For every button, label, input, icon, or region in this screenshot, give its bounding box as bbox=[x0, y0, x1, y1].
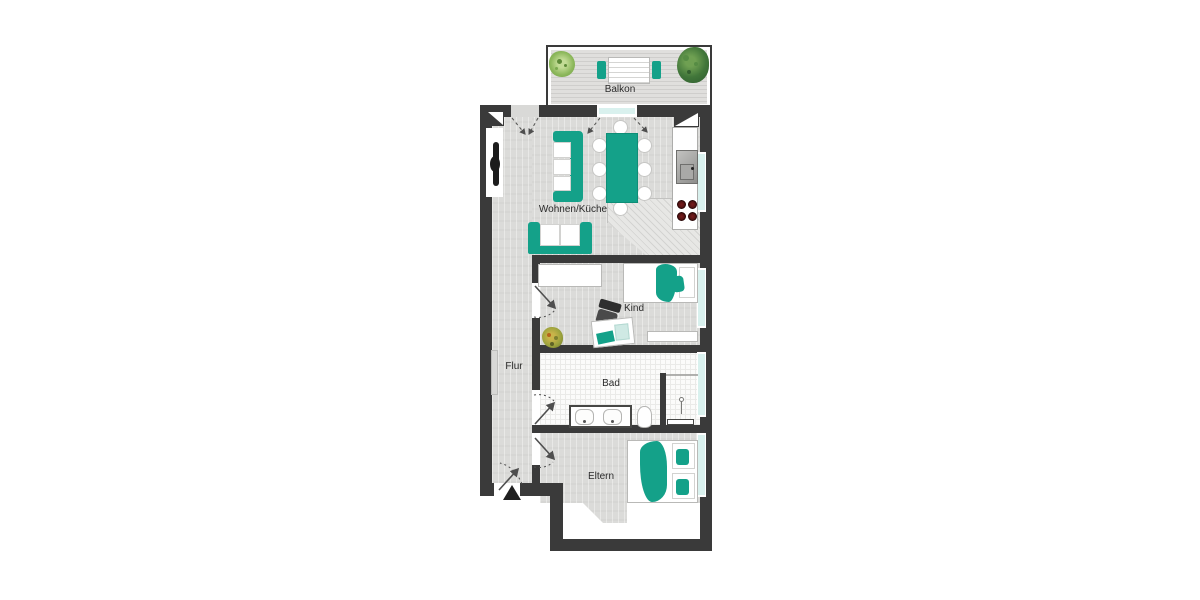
balcony-chair-right bbox=[652, 61, 661, 79]
wall-shower-partition bbox=[660, 373, 666, 425]
duct-shaft-tr-fill bbox=[675, 113, 698, 126]
kind-plant-icon bbox=[542, 327, 563, 348]
room-label-wohnen-kueche: Wohnen/Küche bbox=[528, 204, 618, 215]
wall-bottom bbox=[550, 539, 712, 551]
stove-burner bbox=[677, 212, 686, 221]
dining-chair bbox=[637, 186, 652, 201]
dining-chair bbox=[637, 162, 652, 177]
sink-faucet-dot bbox=[583, 420, 586, 423]
sofa-cushion bbox=[553, 159, 571, 175]
eltern-bed-duvet bbox=[640, 441, 667, 502]
balcony-door-glazing bbox=[599, 108, 635, 114]
wall-hall-seg4 bbox=[532, 465, 540, 483]
room-label-flur: Flur bbox=[489, 361, 539, 372]
wall-living-kind bbox=[532, 255, 700, 263]
room-label-eltern: Eltern bbox=[571, 471, 631, 482]
kind-bed-cushion bbox=[671, 275, 685, 293]
balcony-table bbox=[608, 57, 650, 84]
window-eltern bbox=[697, 433, 706, 497]
room-label-kind: Kind bbox=[609, 303, 659, 314]
room-label-bad: Bad bbox=[586, 378, 636, 389]
dining-chair bbox=[592, 186, 607, 201]
wall-hall-seg2 bbox=[532, 318, 540, 345]
loveseat-backrest bbox=[528, 246, 592, 254]
window-top-left-opening bbox=[511, 105, 539, 117]
sofa-cushion bbox=[553, 142, 571, 158]
kitchen-sink-icon bbox=[676, 150, 698, 184]
sink-faucet-dot bbox=[611, 420, 614, 423]
kind-desk-pad bbox=[614, 323, 630, 340]
radiator bbox=[491, 350, 498, 395]
kind-shelf bbox=[647, 331, 698, 342]
balcony-plant-right-icon bbox=[677, 47, 709, 83]
balcony-chair-left bbox=[597, 61, 606, 79]
dining-table bbox=[606, 133, 638, 203]
floor-plan: Balkon bbox=[0, 0, 1200, 600]
eltern-bed-cushion bbox=[676, 479, 689, 495]
eltern-bed-cushion bbox=[676, 449, 689, 465]
stove-burner bbox=[688, 200, 697, 209]
dining-chair bbox=[592, 162, 607, 177]
shower-head-icon bbox=[681, 400, 682, 414]
stove-burner bbox=[677, 200, 686, 209]
shower-head-dot bbox=[679, 397, 684, 402]
room-label-balkon: Balkon bbox=[595, 84, 645, 95]
loveseat-cushion bbox=[560, 224, 580, 246]
kind-plant-detail bbox=[547, 333, 551, 337]
entrance-triangle-icon bbox=[503, 485, 521, 500]
duct-shaft-top-left-icon bbox=[487, 111, 504, 126]
duct-shaft-top-right-icon bbox=[674, 112, 699, 127]
shower-tray bbox=[667, 419, 694, 425]
tv-stand bbox=[490, 156, 500, 172]
balcony-plant-left-detail bbox=[557, 59, 562, 64]
kind-wardrobe bbox=[538, 264, 602, 287]
sink-faucet-dot bbox=[691, 167, 694, 170]
balcony-plant-right-detail bbox=[683, 55, 689, 61]
balcony-plant-left-icon bbox=[549, 51, 575, 77]
loveseat-cushion bbox=[540, 224, 560, 246]
dining-chair bbox=[637, 138, 652, 153]
dining-chair bbox=[592, 138, 607, 153]
window-bad bbox=[697, 352, 706, 417]
sofa-backrest bbox=[570, 131, 583, 202]
window-kind bbox=[697, 268, 706, 328]
sofa-cushion bbox=[553, 176, 571, 191]
wall-bottom-entry-left bbox=[480, 483, 494, 496]
stove-burner bbox=[688, 212, 697, 221]
duct-shaft-tl-fill bbox=[488, 112, 503, 125]
window-kitchen bbox=[697, 152, 706, 212]
toilet-icon bbox=[637, 406, 652, 428]
